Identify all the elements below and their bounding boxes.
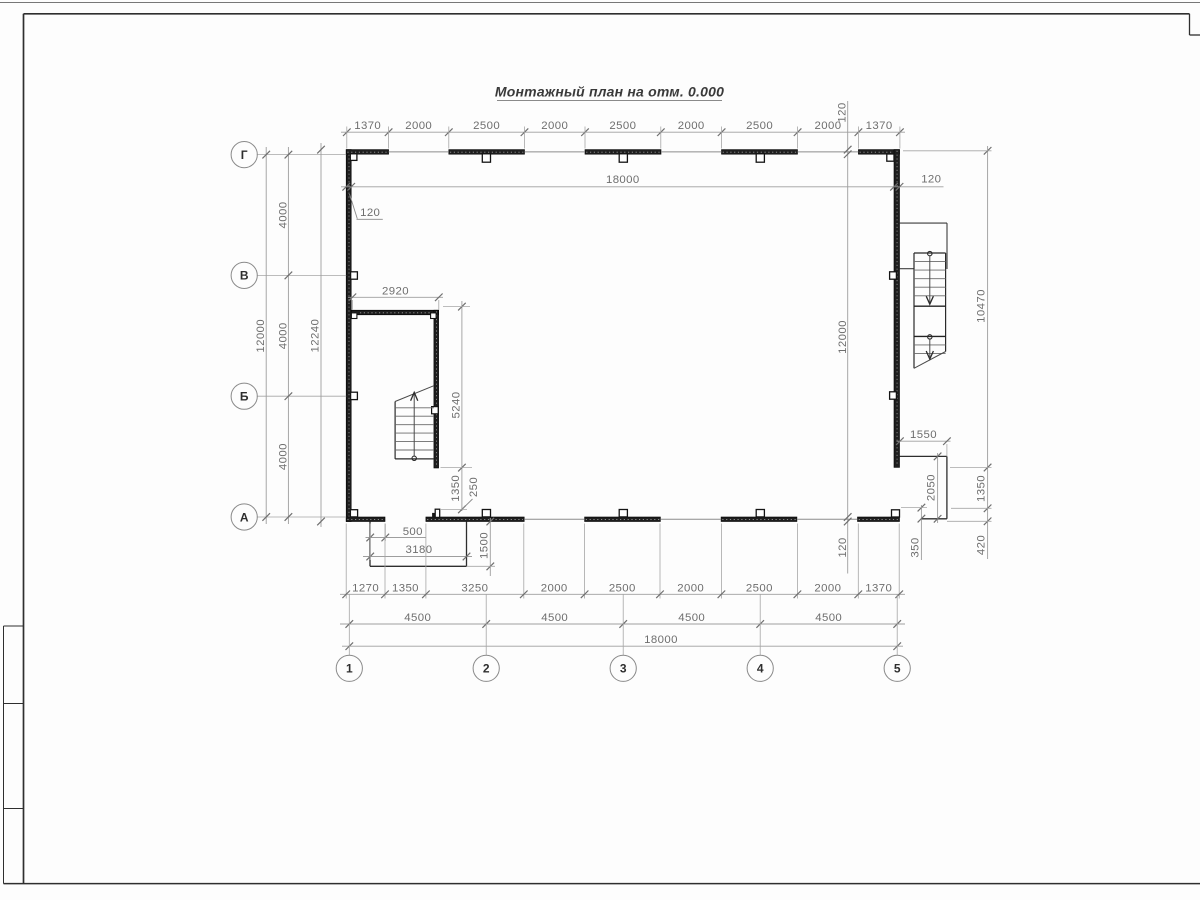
svg-text:3250: 3250 [461,582,488,594]
svg-text:2000: 2000 [541,120,568,132]
svg-text:2000: 2000 [678,120,705,132]
svg-text:1500: 1500 [479,532,491,559]
svg-text:1350: 1350 [450,475,462,502]
svg-text:2000: 2000 [405,120,432,132]
svg-text:2050: 2050 [926,474,938,501]
svg-text:4: 4 [757,662,764,676]
svg-text:2500: 2500 [609,120,636,132]
svg-text:2500: 2500 [473,120,500,132]
svg-text:2500: 2500 [746,582,773,594]
svg-text:4500: 4500 [678,612,705,624]
svg-text:2000: 2000 [541,582,568,594]
svg-text:2: 2 [483,662,490,676]
svg-text:10470: 10470 [975,289,987,323]
svg-text:4000: 4000 [277,443,289,470]
svg-text:120: 120 [921,174,941,186]
svg-text:1550: 1550 [910,429,937,441]
svg-text:2500: 2500 [746,120,773,132]
svg-text:4000: 4000 [277,322,289,349]
svg-text:2000: 2000 [677,582,704,594]
svg-text:350: 350 [910,537,922,557]
svg-text:18000: 18000 [606,174,640,186]
svg-text:2920: 2920 [382,285,409,297]
svg-text:1370: 1370 [866,120,893,132]
svg-text:2500: 2500 [609,582,636,594]
svg-text:18000: 18000 [644,634,678,646]
svg-text:4500: 4500 [541,612,568,624]
svg-text:Монтажный план на отм. 0.000: Монтажный план на отм. 0.000 [495,84,724,100]
svg-text:2000: 2000 [814,582,841,594]
svg-text:12000: 12000 [837,320,849,354]
svg-text:1: 1 [346,662,353,676]
svg-text:5240: 5240 [451,392,463,419]
svg-text:А: А [240,510,249,524]
svg-text:1370: 1370 [354,120,381,132]
svg-text:В: В [240,269,249,283]
svg-text:4500: 4500 [404,612,431,624]
svg-text:Б: Б [240,390,249,404]
svg-text:12240: 12240 [310,319,322,353]
svg-text:120: 120 [837,102,849,122]
svg-text:1270: 1270 [352,582,379,594]
svg-text:4500: 4500 [815,612,842,624]
svg-text:5: 5 [894,662,901,676]
svg-text:1350: 1350 [975,475,987,502]
svg-text:250: 250 [468,477,480,497]
svg-text:4000: 4000 [277,202,289,229]
svg-text:120: 120 [837,537,849,557]
svg-text:3: 3 [620,662,627,676]
svg-text:12000: 12000 [255,319,267,353]
svg-text:1350: 1350 [392,582,419,594]
svg-text:120: 120 [360,207,380,219]
svg-text:3180: 3180 [406,544,433,556]
svg-text:420: 420 [975,535,987,555]
svg-text:1370: 1370 [865,582,892,594]
svg-text:500: 500 [403,526,423,538]
svg-text:Г: Г [241,148,248,162]
